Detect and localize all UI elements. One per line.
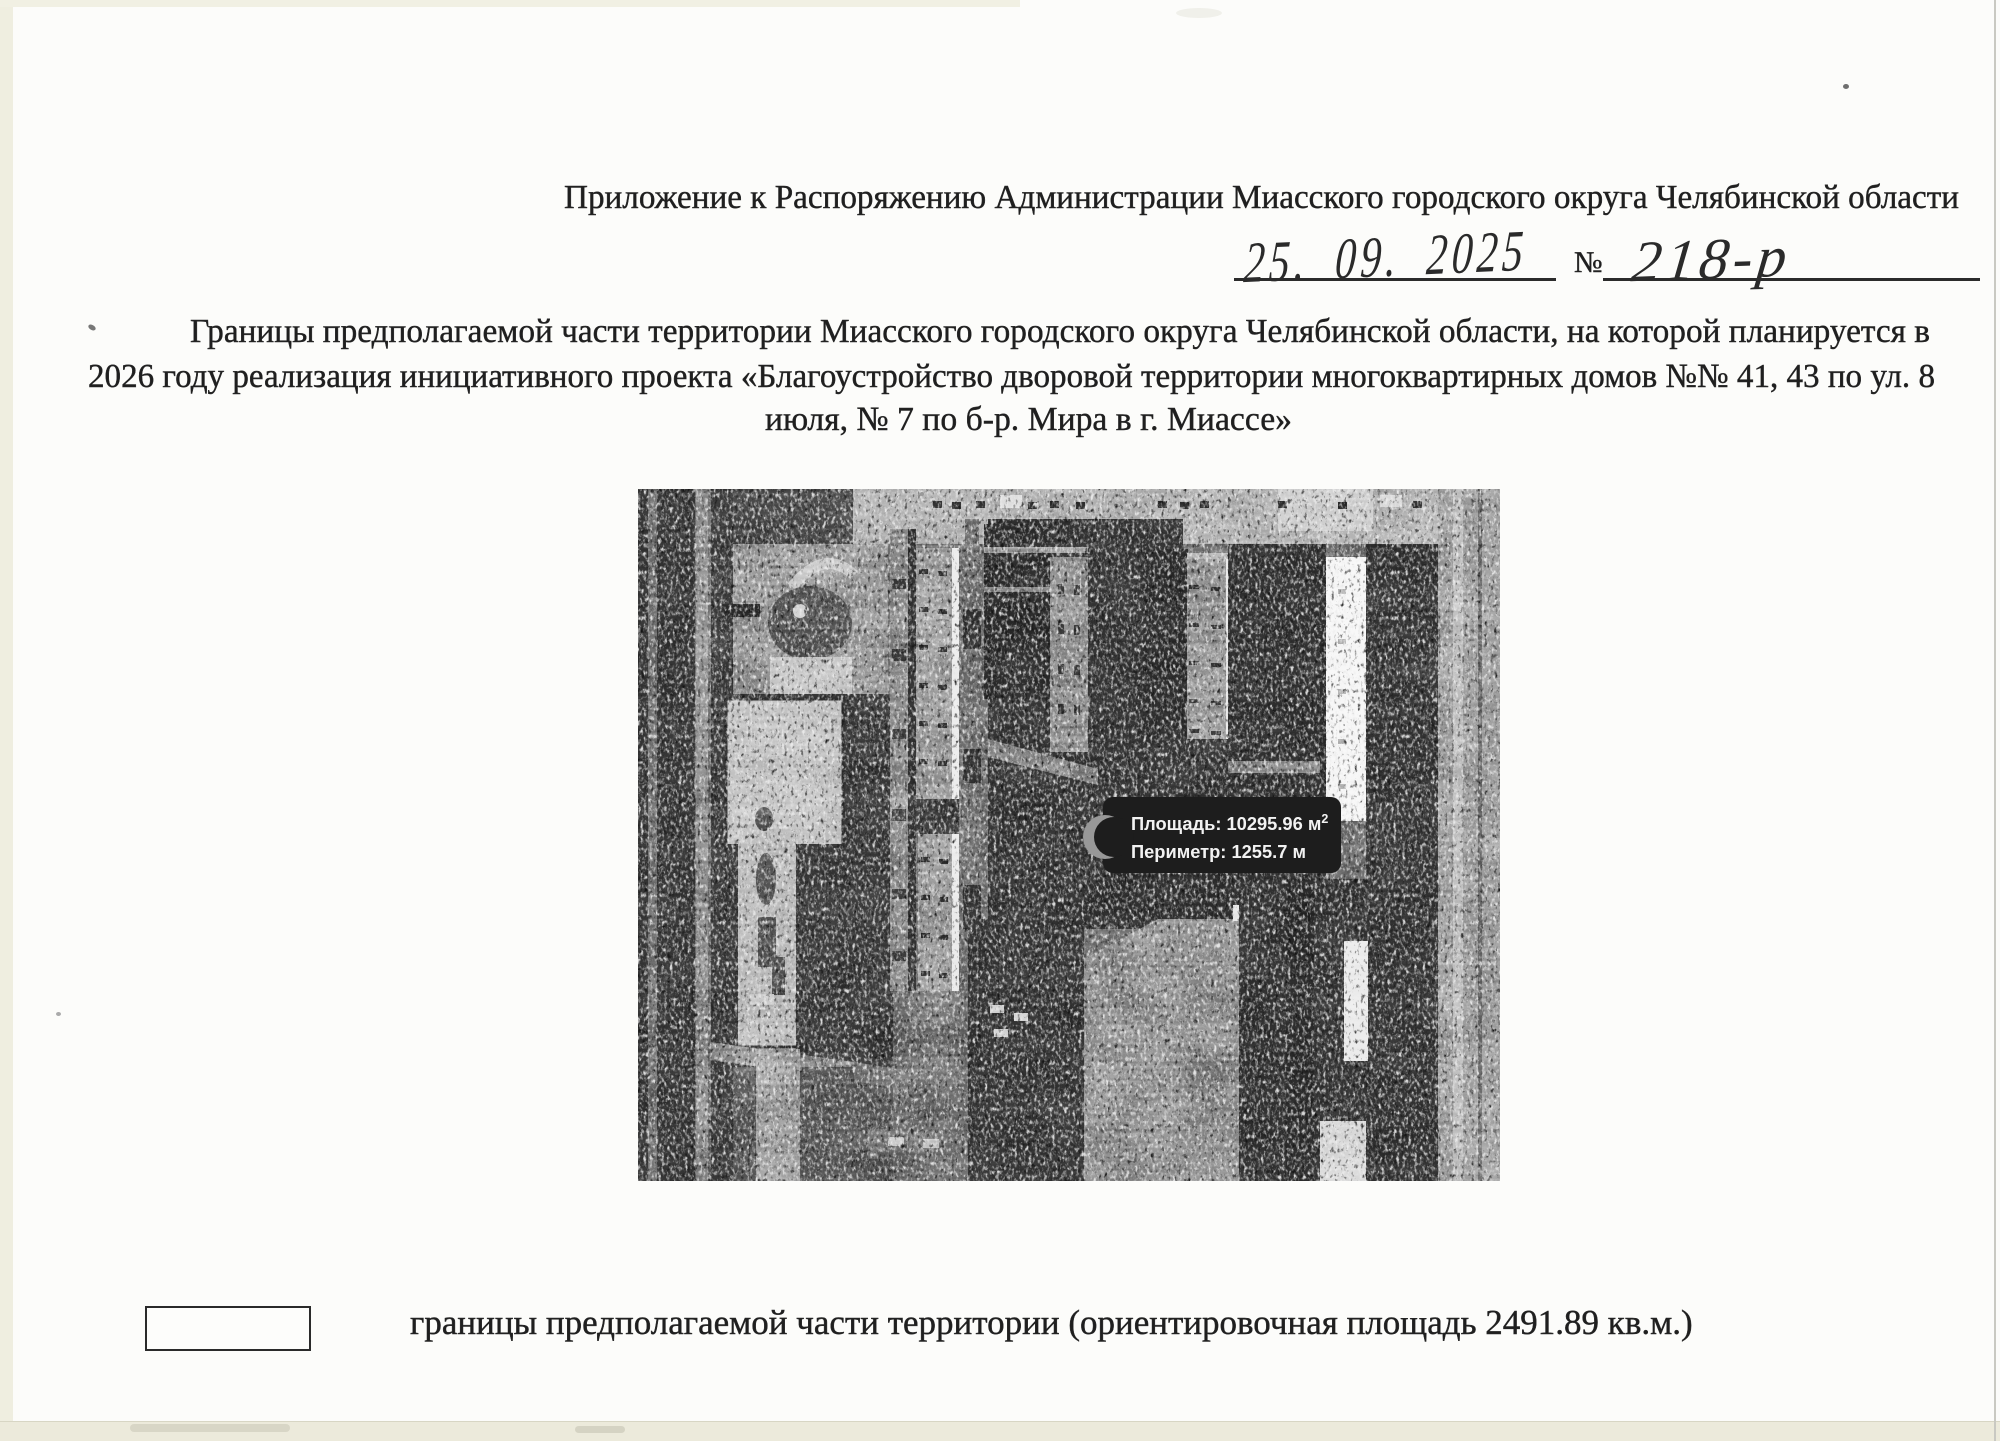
svg-text:Периметр: 1255.7 м: Периметр: 1255.7 м <box>1131 841 1306 862</box>
svg-text:Площадь: 10295.96 м2: Площадь: 10295.96 м2 <box>1131 812 1328 834</box>
